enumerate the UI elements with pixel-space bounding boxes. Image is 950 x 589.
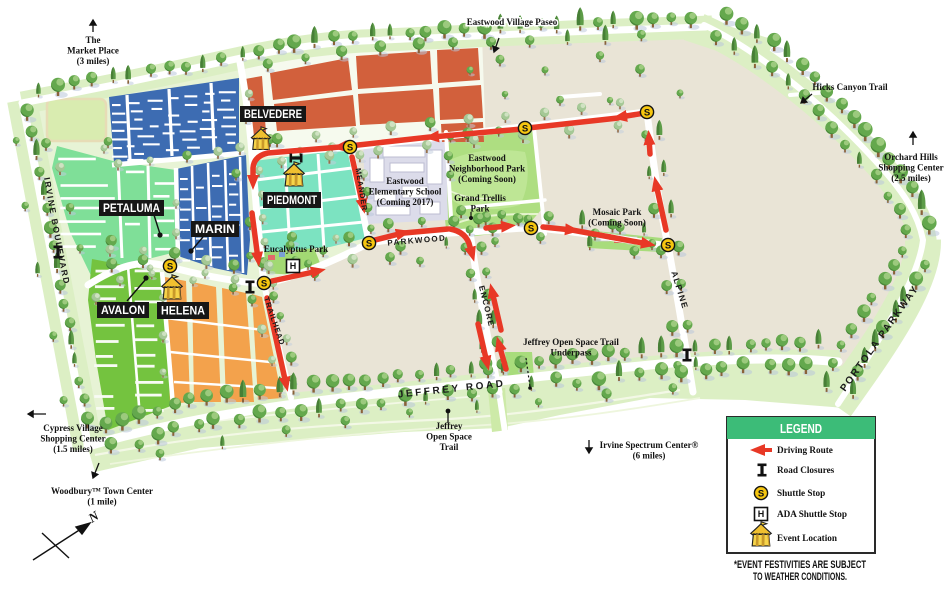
svg-text:Driving Route: Driving Route	[777, 445, 833, 455]
svg-text:TO WEATHER CONDITIONS.: TO WEATHER CONDITIONS.	[753, 571, 847, 583]
svg-text:ADA Shuttle Stop: ADA Shuttle Stop	[777, 509, 847, 519]
svg-text:MARIN: MARIN	[195, 224, 235, 236]
svg-text:AVALON: AVALON	[101, 305, 145, 317]
svg-text:Event Location: Event Location	[777, 533, 837, 543]
svg-text:Hicks Canyon Trail: Hicks Canyon Trail	[812, 82, 888, 92]
svg-text:Eucalyptus Park: Eucalyptus Park	[264, 244, 328, 254]
svg-text:*EVENT FESTIVITIES ARE SUBJECT: *EVENT FESTIVITIES ARE SUBJECT	[734, 559, 866, 571]
svg-text:HELENA: HELENA	[161, 306, 205, 318]
svg-text:LEGEND: LEGEND	[780, 422, 822, 436]
svg-text:Eastwood Village Paseo: Eastwood Village Paseo	[467, 17, 558, 27]
svg-text:Shuttle Stop: Shuttle Stop	[777, 488, 825, 498]
svg-text:Mosaic Park(Coming Soon): Mosaic Park(Coming Soon)	[588, 207, 646, 227]
svg-text:Road Closures: Road Closures	[777, 465, 835, 475]
svg-text:PETALUMA: PETALUMA	[103, 203, 160, 215]
svg-text:BELVEDERE: BELVEDERE	[244, 109, 302, 121]
svg-text:PIEDMONT: PIEDMONT	[267, 195, 317, 207]
